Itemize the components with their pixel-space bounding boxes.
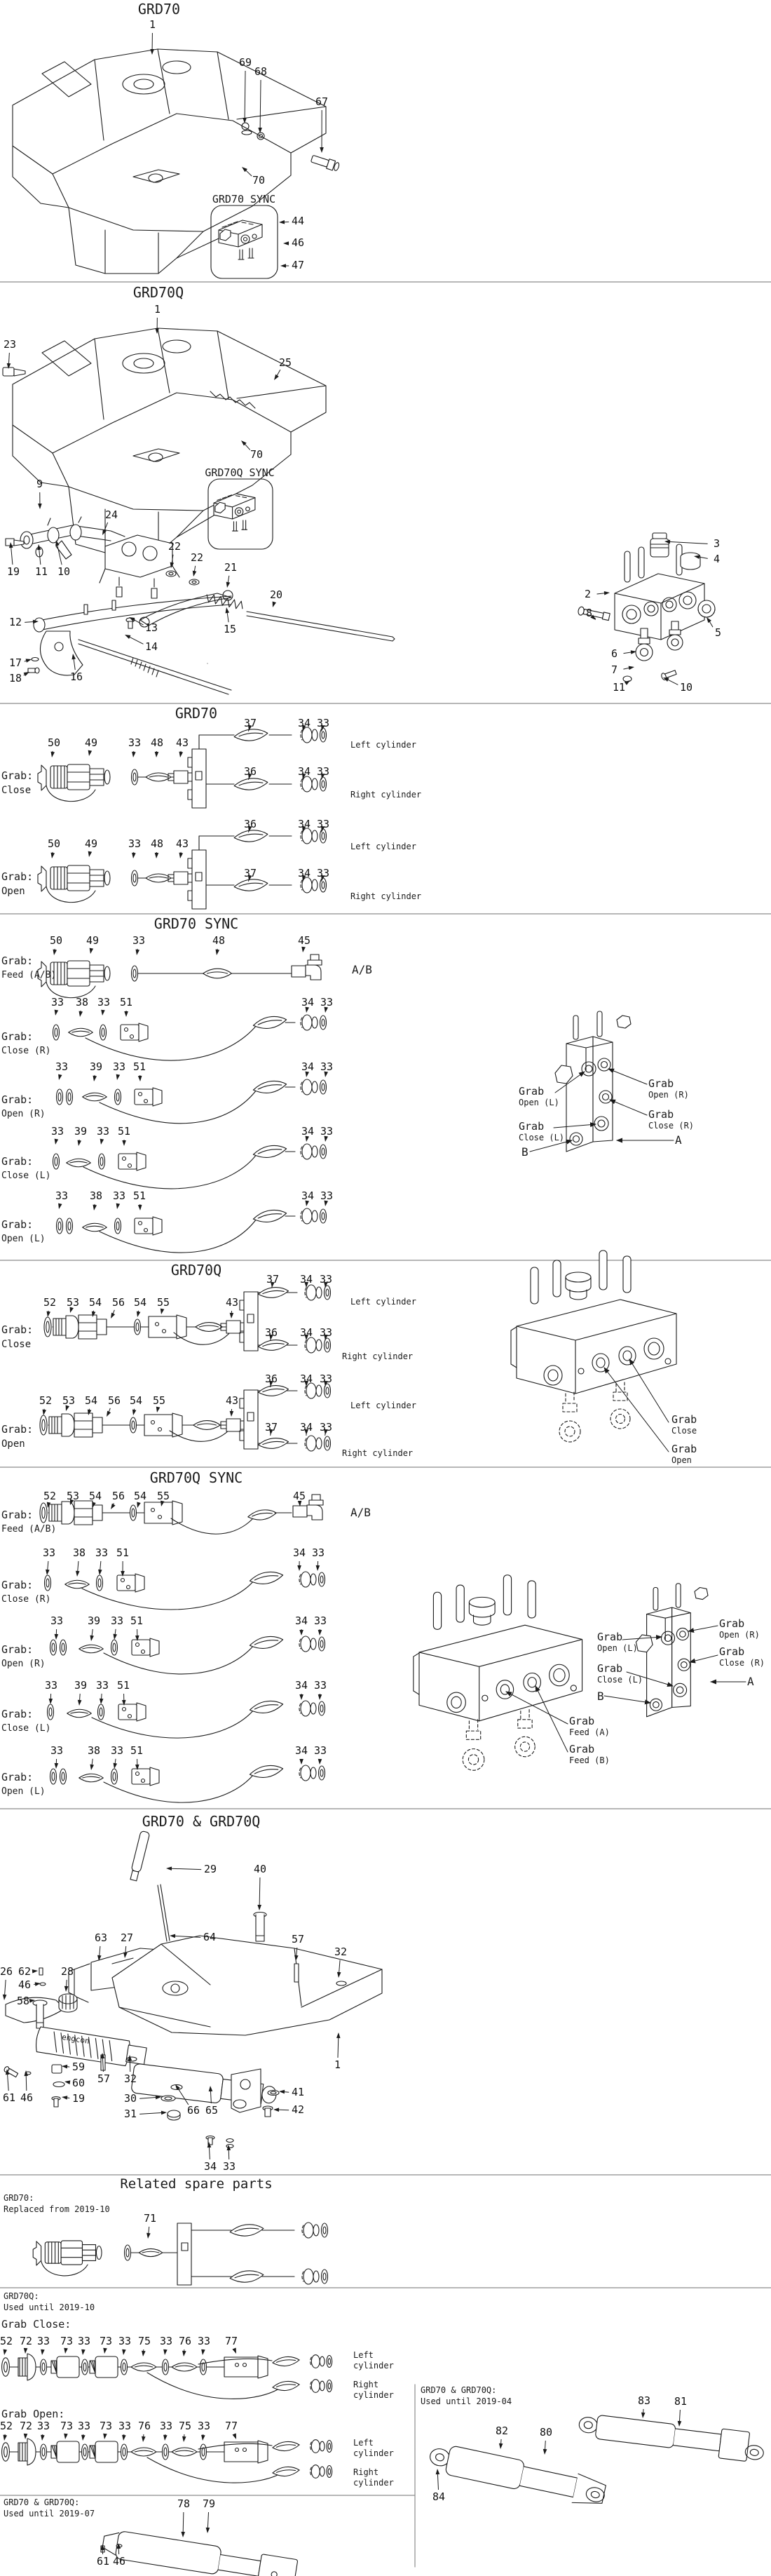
row-label: Open xyxy=(1,1439,25,1450)
part-callout-33: 33 xyxy=(320,1328,332,1338)
part-callout-33: 33 xyxy=(317,767,329,777)
part-callout-38: 38 xyxy=(76,997,88,1008)
part-callout-65: 65 xyxy=(205,2105,218,2116)
part-callout-36: 36 xyxy=(244,767,257,777)
part-callout-34: 34 xyxy=(300,1274,313,1285)
part-callout-33: 33 xyxy=(317,868,329,879)
part-callout-51: 51 xyxy=(133,1062,146,1072)
part-callout-26: 26 xyxy=(0,1967,13,1977)
part-callout-32: 32 xyxy=(334,1947,347,1957)
part-callout-56: 56 xyxy=(112,1491,125,1502)
block-label: Open xyxy=(671,1456,692,1465)
part-callout-33: 33 xyxy=(78,2421,90,2432)
part-callout-1: 1 xyxy=(334,2060,341,2070)
part-callout-70: 70 xyxy=(252,175,265,186)
part-callout-3: 3 xyxy=(714,539,720,549)
part-callout-33: 33 xyxy=(50,1616,63,1626)
note-label: Used until 2019-04 xyxy=(421,2397,512,2406)
block-label: Grab xyxy=(519,1121,544,1133)
row-label: Close (R) xyxy=(1,1046,50,1057)
row-label: Close (L) xyxy=(1,1171,50,1182)
part-callout-51: 51 xyxy=(116,1548,129,1558)
block-label: Grab xyxy=(519,1086,544,1098)
part-callout-34: 34 xyxy=(295,1680,308,1691)
part-callout-39: 39 xyxy=(90,1062,102,1072)
row-label: Open (R) xyxy=(1,1110,46,1120)
part-callout-46: 46 xyxy=(18,1980,31,1990)
block-label: Close (L) xyxy=(597,1675,643,1685)
block-label: Grab xyxy=(671,1443,697,1455)
part-callout-34: 34 xyxy=(298,868,311,879)
brand-marking: engcon xyxy=(61,2033,90,2046)
part-callout-59: 59 xyxy=(72,2062,85,2072)
part-callout-55: 55 xyxy=(153,1396,165,1406)
part-callout-14: 14 xyxy=(145,642,158,652)
part-callout-39: 39 xyxy=(88,1616,100,1626)
part-callout-73: 73 xyxy=(60,2421,73,2432)
part-callout-51: 51 xyxy=(118,1126,130,1137)
part-callout-24: 24 xyxy=(105,510,118,520)
part-callout-34: 34 xyxy=(298,819,311,830)
part-callout-54: 54 xyxy=(134,1297,146,1308)
part-callout-34: 34 xyxy=(298,767,311,777)
part-callout-45: 45 xyxy=(298,936,311,946)
part-callout-33: 33 xyxy=(320,1126,333,1137)
part-callout-77: 77 xyxy=(225,2421,238,2432)
part-callout-72: 72 xyxy=(20,2336,32,2347)
part-callout-51: 51 xyxy=(130,1746,143,1756)
row-label: Grab: xyxy=(1,1424,33,1436)
part-callout-36: 36 xyxy=(265,1328,278,1338)
part-callout-36: 36 xyxy=(244,819,257,830)
part-callout-38: 38 xyxy=(88,1746,100,1756)
part-callout-43: 43 xyxy=(176,839,189,849)
part-callout-46: 46 xyxy=(113,2556,125,2567)
row-label: Grab: xyxy=(1,1509,33,1521)
part-callout-11: 11 xyxy=(613,682,625,693)
sec4-title: GRD70 SYNC xyxy=(154,916,238,931)
part-callout-73: 73 xyxy=(60,2336,73,2347)
row-label: Grab Close: xyxy=(1,2319,71,2331)
part-callout-22: 22 xyxy=(168,541,181,552)
part-callout-51: 51 xyxy=(120,997,132,1008)
part-callout-52: 52 xyxy=(43,1297,56,1308)
part-callout-52: 52 xyxy=(43,1491,56,1502)
part-callout-56: 56 xyxy=(112,1297,125,1308)
note-label: GRD70Q: xyxy=(4,2292,39,2301)
block-label: Grab xyxy=(719,1646,744,1658)
part-callout-33: 33 xyxy=(78,2336,90,2347)
part-callout-34: 34 xyxy=(295,1616,308,1626)
part-callout-33: 33 xyxy=(95,1548,108,1558)
part-callout-4: 4 xyxy=(714,554,720,565)
note-label: GRD70: xyxy=(4,2194,34,2203)
row-label: Grab: xyxy=(1,1708,33,1720)
part-callout-15: 15 xyxy=(224,624,236,635)
block-label: Grab xyxy=(671,1414,697,1426)
part-callout-79: 79 xyxy=(203,2499,215,2509)
part-callout-77: 77 xyxy=(225,2336,238,2347)
part-callout-31: 31 xyxy=(124,2109,137,2119)
part-callout-48: 48 xyxy=(212,936,225,946)
part-callout-33: 33 xyxy=(37,2421,50,2432)
cylinder-label: Left cylinder xyxy=(350,842,416,851)
part-callout-53: 53 xyxy=(67,1491,79,1502)
row-label: Open (R) xyxy=(1,1659,46,1670)
part-callout-53: 53 xyxy=(67,1297,79,1308)
part-callout-2: 2 xyxy=(585,589,591,600)
port-label: A/B xyxy=(352,964,372,976)
part-callout-61: 61 xyxy=(3,2093,15,2103)
part-callout-48: 48 xyxy=(151,738,163,748)
note-label: GRD70 & GRD70Q: xyxy=(4,2498,79,2507)
cylinder-label: cylinder xyxy=(353,2391,394,2400)
part-callout-33: 33 xyxy=(317,718,329,729)
part-callout-33: 33 xyxy=(45,1680,57,1691)
port-label: B xyxy=(597,1690,604,1703)
part-callout-10: 10 xyxy=(680,682,692,693)
block-label: Grab xyxy=(648,1109,674,1121)
part-callout-6: 6 xyxy=(611,649,618,659)
part-callout-33: 33 xyxy=(55,1191,68,1201)
part-callout-33: 33 xyxy=(50,1746,63,1756)
part-callout-5: 5 xyxy=(715,628,721,638)
part-callout-64: 64 xyxy=(203,1932,216,1943)
part-callout-75: 75 xyxy=(138,2336,151,2347)
part-callout-73: 73 xyxy=(100,2421,112,2432)
part-callout-47: 47 xyxy=(292,260,304,271)
part-callout-33: 33 xyxy=(160,2336,172,2347)
part-callout-83: 83 xyxy=(638,2396,650,2406)
sec2-title: GRD70Q xyxy=(133,285,184,300)
part-callout-36: 36 xyxy=(265,1374,278,1384)
part-callout-66: 66 xyxy=(187,2105,200,2116)
part-callout-22: 22 xyxy=(191,553,203,563)
part-callout-43: 43 xyxy=(226,1297,238,1308)
part-callout-33: 33 xyxy=(43,1548,55,1558)
sec3-title: GRD70 xyxy=(175,706,217,721)
part-callout-48: 48 xyxy=(151,839,163,849)
part-callout-33: 33 xyxy=(113,1191,125,1201)
block-label: Open (L) xyxy=(519,1098,559,1107)
part-callout-33: 33 xyxy=(128,839,141,849)
part-callout-38: 38 xyxy=(73,1548,86,1558)
part-callout-33: 33 xyxy=(160,2421,172,2432)
part-callout-34: 34 xyxy=(298,718,311,729)
part-callout-1: 1 xyxy=(154,304,161,315)
row-label: Close (L) xyxy=(1,1724,50,1734)
part-callout-52: 52 xyxy=(0,2336,13,2347)
part-callout-37: 37 xyxy=(244,868,257,879)
block-label: Close (L) xyxy=(519,1133,564,1142)
part-callout-52: 52 xyxy=(39,1396,52,1406)
part-callout-33: 33 xyxy=(97,997,110,1008)
part-callout-68: 68 xyxy=(254,67,267,77)
part-callout-50: 50 xyxy=(48,738,60,748)
part-callout-33: 33 xyxy=(37,2336,50,2347)
sec7-title: GRD70 & GRD70Q xyxy=(142,1814,261,1829)
cylinder-label: Left cylinder xyxy=(350,1401,416,1410)
part-callout-60: 60 xyxy=(72,2078,85,2089)
block-label: Grab xyxy=(569,1744,594,1755)
part-callout-50: 50 xyxy=(50,936,62,946)
block-label: Open (R) xyxy=(648,1091,689,1100)
row-label: Grab: xyxy=(1,955,33,967)
part-callout-33: 33 xyxy=(113,1062,125,1072)
part-callout-56: 56 xyxy=(108,1396,121,1406)
part-callout-33: 33 xyxy=(320,997,333,1008)
part-callout-33: 33 xyxy=(314,1746,327,1756)
part-callout-70: 70 xyxy=(250,450,263,460)
port-label: A xyxy=(747,1675,754,1688)
part-callout-34: 34 xyxy=(301,1191,314,1201)
part-callout-76: 76 xyxy=(138,2421,151,2432)
cylinder-label: Left xyxy=(353,2439,374,2448)
cylinder-label: cylinder xyxy=(353,2479,394,2488)
part-callout-25: 25 xyxy=(279,358,292,368)
block-label: Close xyxy=(671,1427,697,1436)
row-label: Grab: xyxy=(1,871,33,883)
part-callout-61: 61 xyxy=(97,2556,109,2567)
part-callout-33: 33 xyxy=(320,1062,333,1072)
part-callout-40: 40 xyxy=(254,1864,266,1875)
part-callout-45: 45 xyxy=(293,1491,306,1502)
part-callout-19: 19 xyxy=(7,567,20,577)
part-callout-17: 17 xyxy=(9,658,22,668)
part-callout-37: 37 xyxy=(265,1422,278,1433)
part-callout-44: 44 xyxy=(292,216,304,227)
part-callout-38: 38 xyxy=(90,1191,102,1201)
cylinder-label: cylinder xyxy=(353,2449,394,2458)
row-label: Grab: xyxy=(1,1579,33,1591)
part-callout-49: 49 xyxy=(86,936,99,946)
part-callout-49: 49 xyxy=(85,839,97,849)
part-callout-54: 54 xyxy=(89,1297,102,1308)
part-callout-78: 78 xyxy=(177,2499,190,2509)
part-callout-37: 37 xyxy=(266,1274,279,1285)
part-callout-10: 10 xyxy=(57,567,70,577)
row-label: Grab: xyxy=(1,1094,33,1106)
cylinder-label: Left cylinder xyxy=(350,741,416,750)
part-callout-33: 33 xyxy=(118,2421,131,2432)
note-label: Used until 2019-07 xyxy=(4,2509,95,2518)
row-label: Feed (A/B) xyxy=(1,1525,56,1535)
part-callout-46: 46 xyxy=(292,238,304,248)
row-label: Grab: xyxy=(1,1324,33,1336)
part-callout-34: 34 xyxy=(300,1328,313,1338)
part-callout-29: 29 xyxy=(204,1864,217,1875)
part-callout-46: 46 xyxy=(20,2093,33,2103)
part-callout-34: 34 xyxy=(295,1746,308,1756)
part-callout-33: 33 xyxy=(132,936,145,946)
part-callout-75: 75 xyxy=(179,2421,191,2432)
part-callout-82: 82 xyxy=(496,2426,508,2436)
part-callout-33: 33 xyxy=(51,997,64,1008)
part-callout-33: 33 xyxy=(128,738,141,748)
part-callout-67: 67 xyxy=(315,97,328,107)
cylinder-label: Right cylinder xyxy=(342,1352,413,1361)
part-callout-43: 43 xyxy=(176,738,189,748)
cylinder-label: Right xyxy=(353,2468,378,2477)
cylinder-label: Right cylinder xyxy=(350,892,421,901)
part-callout-57: 57 xyxy=(292,1934,304,1945)
block-label: Feed (A) xyxy=(569,1728,610,1737)
part-callout-73: 73 xyxy=(100,2336,112,2347)
note-label: Used until 2019-10 xyxy=(4,2303,95,2312)
row-label: Open (L) xyxy=(1,1787,46,1798)
part-callout-33: 33 xyxy=(312,1548,325,1558)
part-callout-34: 34 xyxy=(204,2162,217,2172)
part-callout-63: 63 xyxy=(95,1933,107,1943)
part-callout-33: 33 xyxy=(111,1746,123,1756)
part-callout-18: 18 xyxy=(9,673,22,684)
part-callout-1: 1 xyxy=(149,20,156,30)
part-callout-33: 33 xyxy=(223,2162,236,2172)
row-label: Close xyxy=(1,785,31,797)
row-label: Open (L) xyxy=(1,1234,46,1245)
part-callout-51: 51 xyxy=(133,1191,146,1201)
part-callout-11: 11 xyxy=(35,567,48,577)
row-label: Close (R) xyxy=(1,1595,50,1605)
part-callout-33: 33 xyxy=(55,1062,68,1072)
annotation-layer: GRD70GRD70 SYNCGRD70QGRD70Q SYNCGRD70Gra… xyxy=(0,0,771,2576)
part-callout-54: 54 xyxy=(85,1396,97,1406)
cylinder-label: Right cylinder xyxy=(350,790,421,800)
part-callout-84: 84 xyxy=(432,2492,445,2502)
part-callout-33: 33 xyxy=(314,1680,327,1691)
part-callout-54: 54 xyxy=(130,1396,142,1406)
part-callout-34: 34 xyxy=(301,1126,314,1137)
block-label: Close (R) xyxy=(719,1659,765,1668)
block-label: Close (R) xyxy=(648,1121,694,1131)
sec1-title: GRD70 xyxy=(138,1,180,17)
sec2-sync-box-title: GRD70Q SYNC xyxy=(205,467,274,479)
part-callout-7: 7 xyxy=(611,665,618,675)
part-callout-16: 16 xyxy=(70,672,83,682)
part-callout-33: 33 xyxy=(96,1680,109,1691)
part-callout-51: 51 xyxy=(130,1616,143,1626)
part-callout-33: 33 xyxy=(111,1616,123,1626)
part-callout-34: 34 xyxy=(300,1374,313,1384)
cylinder-label: Left xyxy=(353,2351,374,2360)
part-callout-69: 69 xyxy=(239,58,252,68)
part-callout-32: 32 xyxy=(124,2074,137,2084)
note-label: Replaced from 2019-10 xyxy=(4,2205,110,2214)
part-callout-71: 71 xyxy=(144,2213,156,2224)
part-callout-12: 12 xyxy=(9,617,22,628)
row-label: Grab: xyxy=(1,1156,33,1168)
part-callout-23: 23 xyxy=(4,339,16,350)
part-callout-55: 55 xyxy=(157,1491,170,1502)
block-label: Grab xyxy=(597,1631,622,1643)
part-callout-33: 33 xyxy=(320,1274,332,1285)
part-callout-39: 39 xyxy=(74,1126,87,1137)
part-callout-41: 41 xyxy=(292,2087,304,2098)
block-label: Grab xyxy=(569,1715,594,1727)
part-callout-33: 33 xyxy=(198,2336,210,2347)
block-label: Open (L) xyxy=(597,1644,638,1653)
block-label: Grab xyxy=(597,1663,622,1675)
row-label: Open xyxy=(1,886,25,898)
part-callout-37: 37 xyxy=(244,718,257,729)
part-callout-58: 58 xyxy=(17,1996,29,2007)
row-label: Grab: xyxy=(1,1031,33,1043)
part-callout-76: 76 xyxy=(179,2336,191,2347)
part-callout-20: 20 xyxy=(270,590,282,600)
part-callout-42: 42 xyxy=(292,2105,304,2115)
part-callout-34: 34 xyxy=(300,1422,313,1433)
cylinder-label: Left cylinder xyxy=(350,1297,416,1307)
cylinder-label: Right cylinder xyxy=(342,1449,413,1458)
note-label: GRD70 & GRD70Q: xyxy=(421,2386,496,2395)
part-callout-34: 34 xyxy=(301,997,314,1008)
block-label: Open (R) xyxy=(719,1631,760,1640)
row-label: Grab Open: xyxy=(1,2408,64,2420)
part-callout-55: 55 xyxy=(157,1297,170,1308)
sec1-sync-box-title: GRD70 SYNC xyxy=(212,194,275,205)
row-label: Grab: xyxy=(1,770,33,782)
part-callout-33: 33 xyxy=(118,2336,131,2347)
part-callout-54: 54 xyxy=(134,1491,146,1502)
sec8-title: Related spare parts xyxy=(120,2177,272,2192)
sec5-title: GRD70Q xyxy=(171,1262,221,1278)
part-callout-33: 33 xyxy=(314,1616,327,1626)
part-callout-30: 30 xyxy=(124,2093,137,2104)
cylinder-label: Right xyxy=(353,2380,378,2389)
sec6-title: GRD70Q SYNC xyxy=(150,1470,243,1485)
part-callout-51: 51 xyxy=(117,1680,130,1691)
row-label: Grab: xyxy=(1,1219,33,1231)
block-label: Grab xyxy=(648,1078,674,1090)
part-callout-43: 43 xyxy=(226,1396,238,1406)
row-label: Feed (A/B) xyxy=(1,971,56,981)
part-callout-21: 21 xyxy=(224,562,237,573)
part-callout-62: 62 xyxy=(18,1967,31,1977)
part-callout-80: 80 xyxy=(540,2427,552,2438)
part-callout-53: 53 xyxy=(62,1396,75,1406)
part-callout-54: 54 xyxy=(89,1491,102,1502)
part-callout-33: 33 xyxy=(51,1126,64,1137)
part-callout-27: 27 xyxy=(121,1933,133,1943)
part-callout-19: 19 xyxy=(72,2093,85,2104)
block-label: Feed (B) xyxy=(569,1756,610,1765)
part-callout-52: 52 xyxy=(0,2421,13,2432)
part-callout-28: 28 xyxy=(61,1967,74,1977)
port-label: A xyxy=(675,1134,682,1147)
row-label: Grab: xyxy=(1,1772,33,1783)
part-callout-8: 8 xyxy=(586,608,592,619)
part-callout-81: 81 xyxy=(674,2396,687,2407)
row-label: Close xyxy=(1,1340,31,1351)
part-callout-33: 33 xyxy=(320,1374,332,1384)
part-callout-39: 39 xyxy=(74,1680,87,1691)
part-callout-33: 33 xyxy=(97,1126,109,1137)
block-label: Grab xyxy=(719,1618,744,1630)
part-callout-34: 34 xyxy=(301,1062,314,1072)
port-label: B xyxy=(521,1146,528,1159)
port-label: A/B xyxy=(350,1506,371,1519)
part-callout-33: 33 xyxy=(320,1191,333,1201)
row-label: Grab: xyxy=(1,1644,33,1656)
cylinder-label: cylinder xyxy=(353,2361,394,2371)
part-callout-57: 57 xyxy=(97,2074,110,2084)
part-callout-33: 33 xyxy=(317,819,329,830)
part-callout-72: 72 xyxy=(20,2421,32,2432)
part-callout-33: 33 xyxy=(320,1422,332,1433)
part-callout-34: 34 xyxy=(293,1548,306,1558)
part-callout-13: 13 xyxy=(145,623,158,633)
part-callout-9: 9 xyxy=(36,479,43,490)
